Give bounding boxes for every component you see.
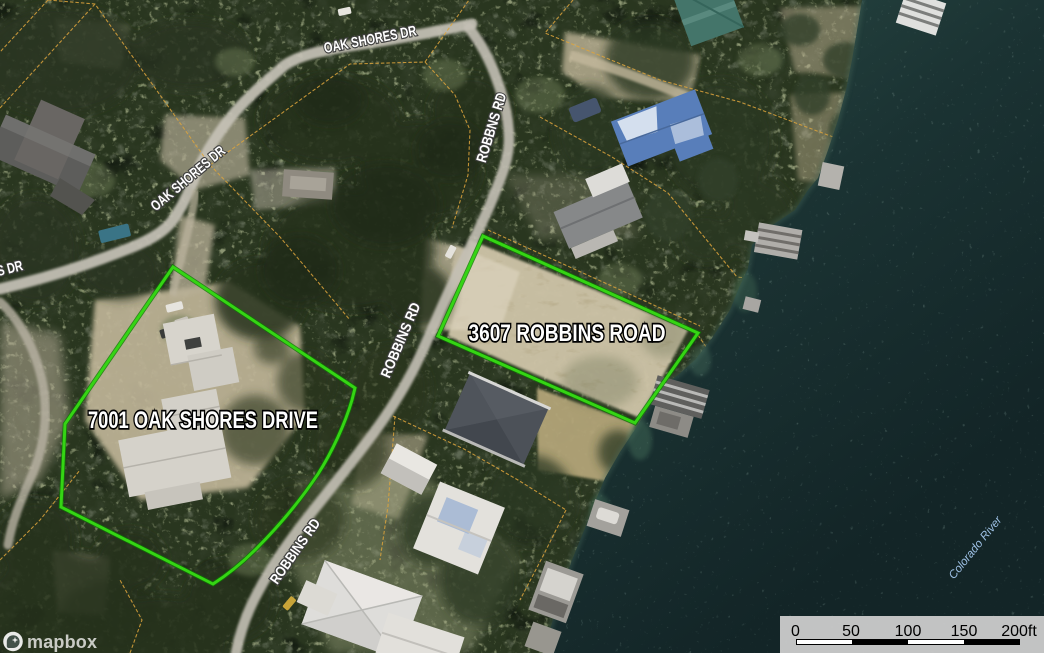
svg-text:150: 150: [951, 623, 978, 640]
svg-text:mapbox: mapbox: [27, 632, 97, 652]
svg-text:0: 0: [791, 623, 800, 640]
svg-text:3607 ROBBINS ROAD: 3607 ROBBINS ROAD: [469, 320, 666, 347]
svg-text:50: 50: [842, 623, 860, 640]
svg-text:100: 100: [895, 623, 922, 640]
svg-text:7001 OAK SHORES DRIVE: 7001 OAK SHORES DRIVE: [88, 407, 318, 434]
svg-text:200ft: 200ft: [1001, 623, 1037, 640]
